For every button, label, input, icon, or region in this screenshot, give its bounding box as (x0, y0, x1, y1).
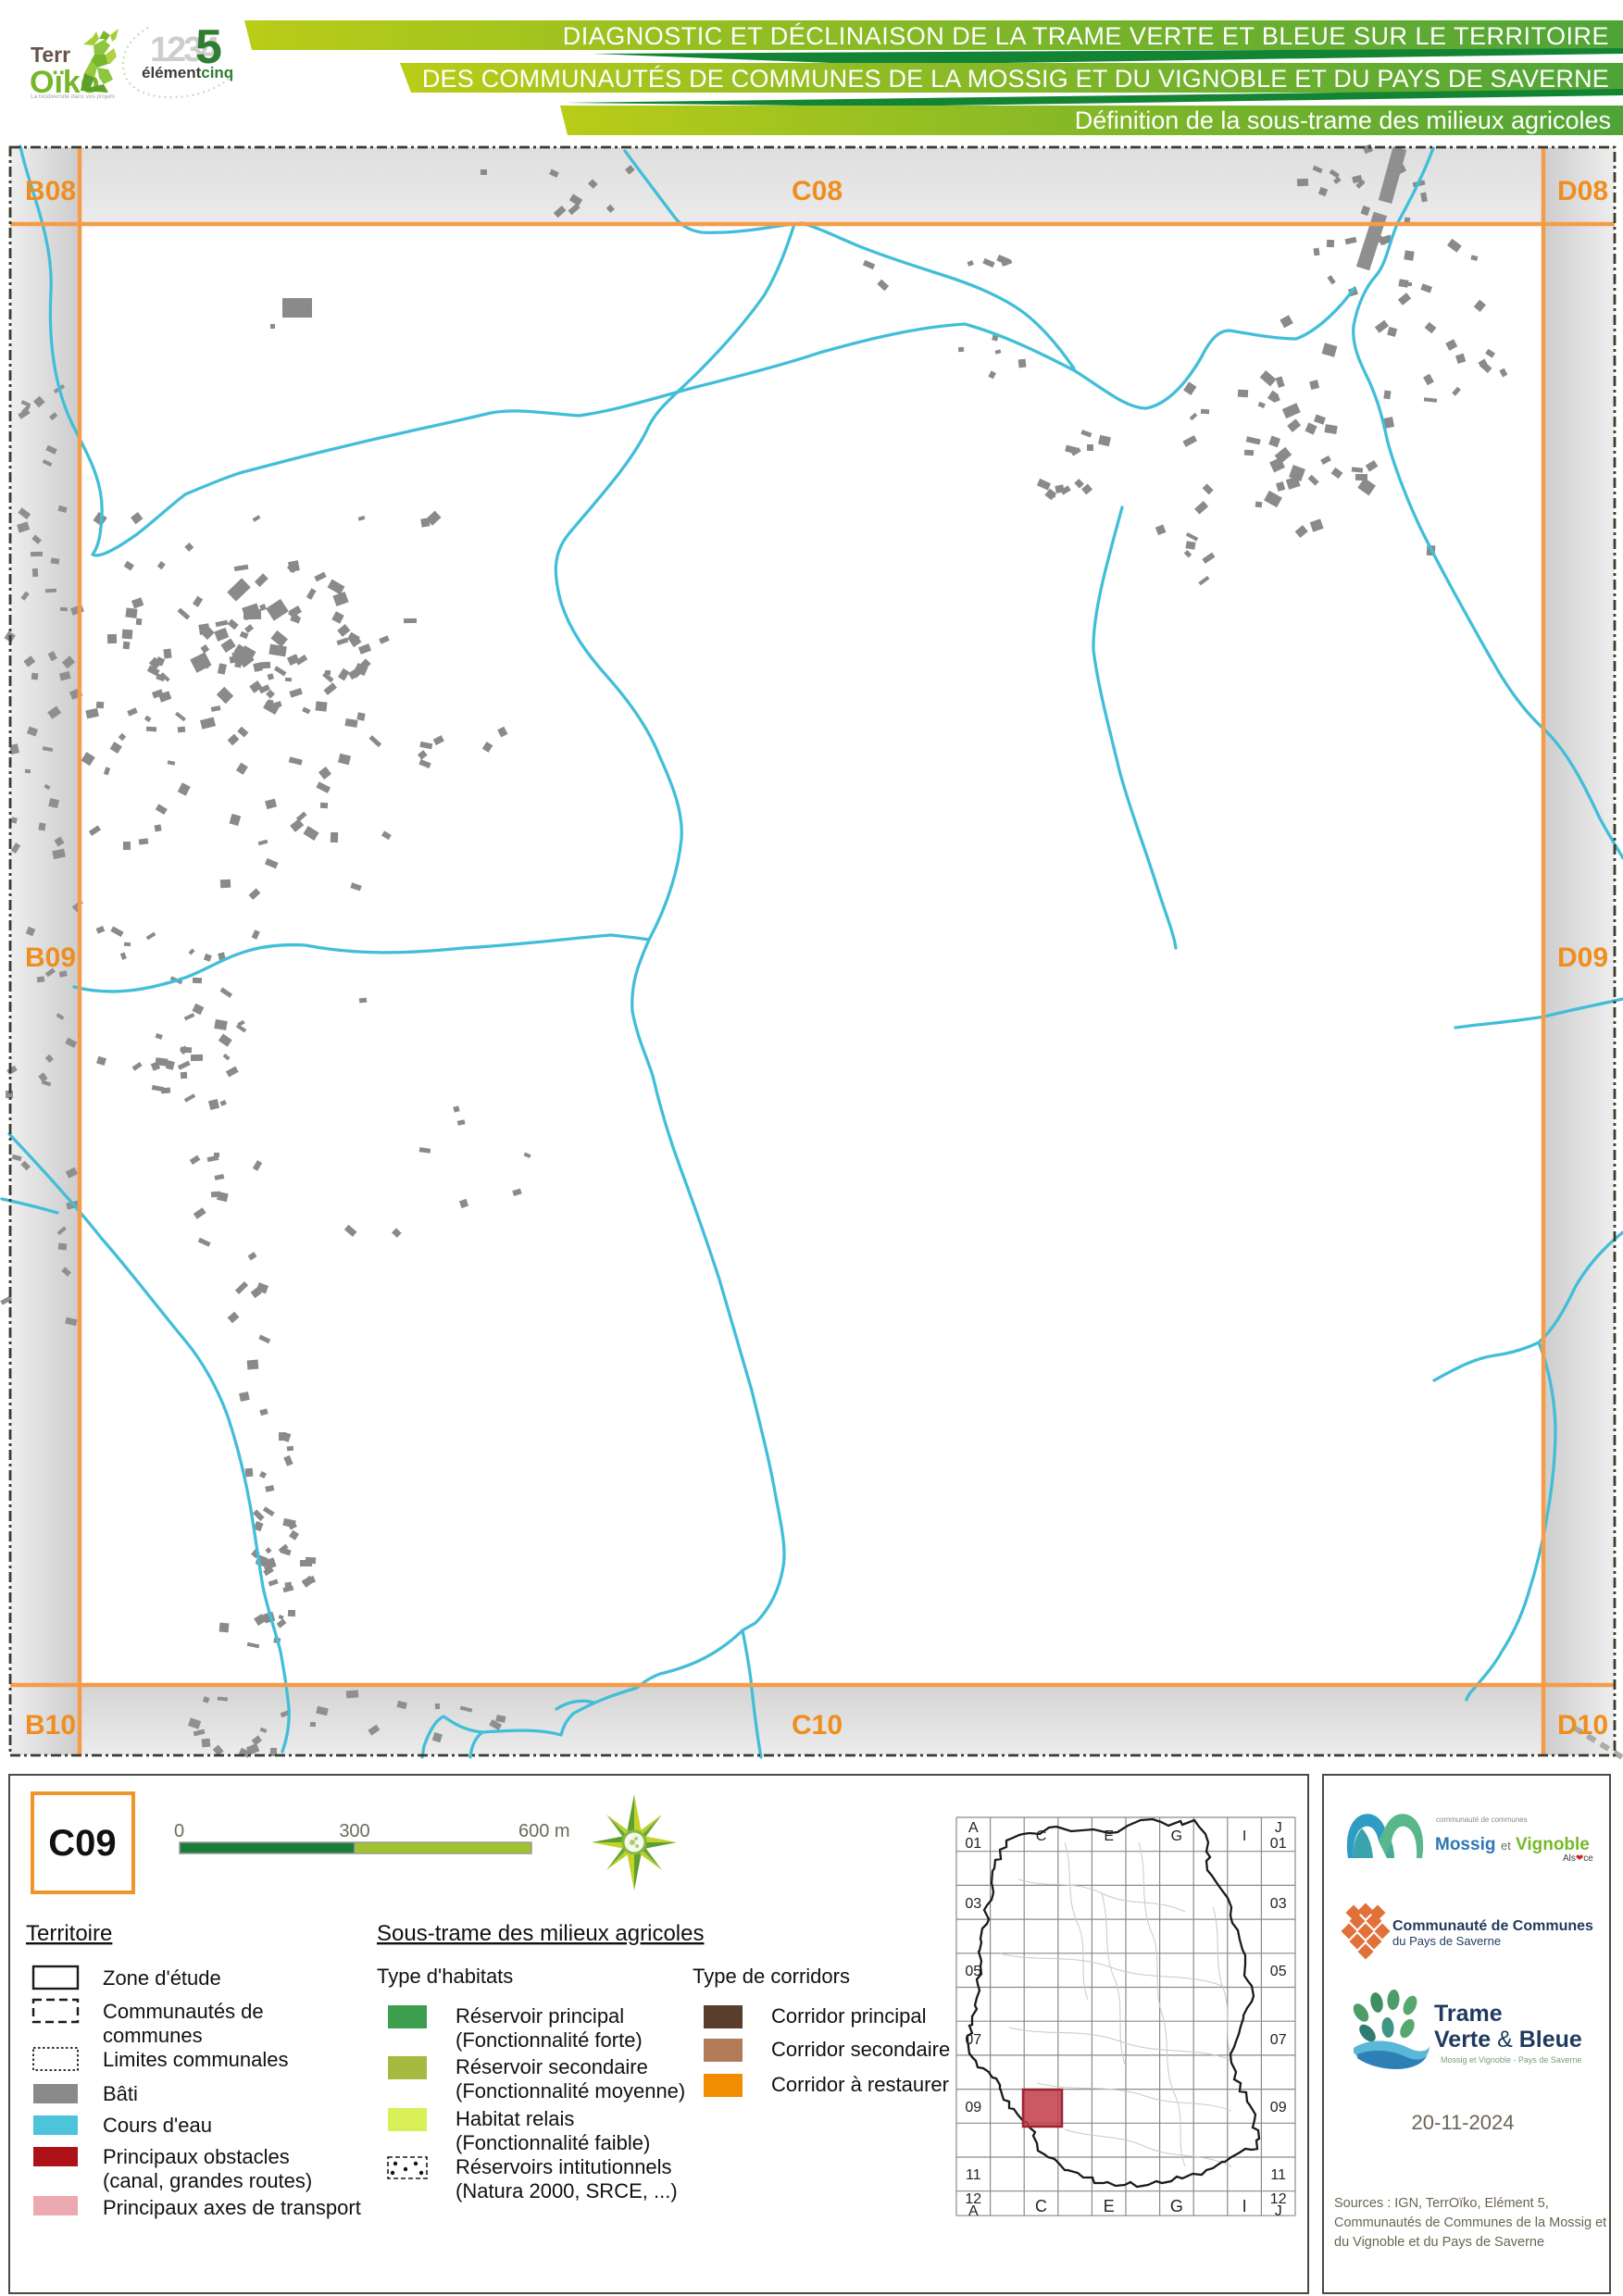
svg-text:Mossig: Mossig (1435, 1835, 1495, 1854)
svg-text:11: 11 (966, 2167, 981, 2183)
svg-text:élémentcinq: élémentcinq (142, 64, 233, 81)
svg-text:(Fonctionnalité forte): (Fonctionnalité forte) (456, 2028, 643, 2052)
svg-text:B09: B09 (25, 942, 76, 973)
svg-text:07: 07 (965, 2032, 981, 2048)
svg-text:DIAGNOSTIC ET DÉCLINAISON DE L: DIAGNOSTIC ET DÉCLINAISON DE LA TRAME VE… (563, 22, 1609, 50)
svg-text:Territoire: Territoire (26, 1921, 112, 1946)
svg-text:C10: C10 (792, 1710, 843, 1741)
svg-text:Trame: Trame (1434, 2001, 1503, 2027)
svg-text:(Natura 2000, SRCE, ...): (Natura 2000, SRCE, ...) (456, 2179, 678, 2202)
svg-text:communes: communes (103, 2024, 203, 2047)
svg-text:20-11-2024: 20-11-2024 (1412, 2111, 1515, 2134)
svg-text:0: 0 (174, 1821, 184, 1841)
svg-text:Mossig et Vignoble - Pays de S: Mossig et Vignoble - Pays de Saverne (1441, 2055, 1581, 2065)
svg-text:Sous-trame des milieux agricol: Sous-trame des milieux agricoles (377, 1921, 704, 1946)
svg-text:Vignoble: Vignoble (1516, 1835, 1590, 1854)
svg-text:Corridor principal: Corridor principal (771, 2004, 927, 2028)
svg-text:J: J (1275, 2203, 1282, 2219)
svg-text:Type de corridors: Type de corridors (693, 1965, 850, 1988)
svg-text:Sources : IGN, TerrOïko, Eléme: Sources : IGN, TerrOïko, Elément 5, (1334, 2196, 1549, 2211)
svg-text:Principaux axes de transport: Principaux axes de transport (103, 2196, 361, 2219)
svg-text:300: 300 (339, 1821, 369, 1841)
svg-text:03: 03 (1270, 1896, 1287, 1912)
svg-text:A: A (968, 2203, 979, 2219)
svg-text:09: 09 (965, 2100, 981, 2115)
svg-text:G: G (1171, 1828, 1182, 1844)
svg-text:01: 01 (965, 1836, 981, 1852)
svg-text:Habitat relais: Habitat relais (456, 2107, 574, 2130)
svg-text:et: et (1501, 1839, 1511, 1853)
svg-text:(canal, grandes routes): (canal, grandes routes) (103, 2169, 312, 2192)
svg-text:05: 05 (965, 1964, 981, 1979)
svg-text:Principaux obstacles: Principaux obstacles (103, 2145, 290, 2168)
svg-text:C08: C08 (792, 176, 843, 206)
svg-text:Verte & Bleue: Verte & Bleue (1434, 2027, 1582, 2053)
svg-text:du Vignoble et du Pays de Save: du Vignoble et du Pays de Saverne (1334, 2235, 1544, 2250)
svg-text:DES COMMUNAUTÉS DE COMMUNES DE: DES COMMUNAUTÉS DE COMMUNES DE LA MOSSIG… (422, 65, 1609, 93)
svg-text:La biodiversité dans vos proje: La biodiversité dans vos projets (31, 94, 116, 100)
svg-text:Communautés de Communes de la: Communautés de Communes de la Mossig et (1334, 2215, 1606, 2230)
svg-text:G: G (1170, 2197, 1183, 2215)
svg-text:Type d'habitats: Type d'habitats (377, 1965, 513, 1988)
svg-text:Cours d'eau: Cours d'eau (103, 2114, 212, 2137)
svg-text:Zone d'étude: Zone d'étude (103, 1966, 221, 1990)
svg-text:D08: D08 (1557, 176, 1608, 206)
svg-text:J: J (1275, 1820, 1282, 1836)
svg-text:Communauté de Communes: Communauté de Communes (1392, 1918, 1593, 1934)
svg-text:A: A (968, 1820, 979, 1836)
svg-text:C: C (1035, 2197, 1047, 2215)
svg-text:B10: B10 (25, 1710, 76, 1741)
svg-text:09: 09 (1270, 2100, 1287, 2115)
svg-text:C: C (1036, 1828, 1047, 1844)
svg-text:Définition de la sous-trame de: Définition de la sous-trame des milieux … (1075, 106, 1611, 134)
svg-text:Corridor à restaurer: Corridor à restaurer (771, 2073, 949, 2096)
svg-text:05: 05 (1270, 1964, 1287, 1979)
svg-text:11: 11 (1270, 2167, 1286, 2183)
svg-text:communauté de communes: communauté de communes (1436, 1816, 1528, 1824)
svg-text:Limites communales: Limites communales (103, 2048, 289, 2071)
svg-text:Terr: Terr (31, 43, 70, 67)
svg-text:Als❤ce: Als❤ce (1563, 1853, 1593, 1864)
svg-text:E: E (1104, 1828, 1114, 1844)
svg-text:B08: B08 (25, 176, 76, 206)
svg-text:01: 01 (1270, 1836, 1287, 1852)
svg-text:C09: C09 (48, 1823, 116, 1864)
svg-text:D10: D10 (1557, 1710, 1608, 1741)
svg-text:Corridor secondaire: Corridor secondaire (771, 2038, 950, 2061)
svg-text:E: E (1104, 2197, 1115, 2215)
svg-text:Réservoir principal: Réservoir principal (456, 2004, 624, 2028)
svg-text:D09: D09 (1557, 942, 1608, 973)
svg-text:Réservoirs intitutionnels: Réservoirs intitutionnels (456, 2155, 672, 2178)
svg-text:du Pays de Saverne: du Pays de Saverne (1392, 1934, 1501, 1948)
svg-text:(Fonctionnalité moyenne): (Fonctionnalité moyenne) (456, 2079, 685, 2103)
svg-text:Communautés de: Communautés de (103, 2000, 264, 2023)
svg-text:03: 03 (965, 1896, 981, 1912)
svg-text:600 m: 600 m (518, 1821, 570, 1841)
svg-text:I: I (1242, 1828, 1246, 1844)
svg-text:(Fonctionnalité faible): (Fonctionnalité faible) (456, 2131, 650, 2154)
svg-text:Réservoir secondaire: Réservoir secondaire (456, 2055, 648, 2078)
svg-text:I: I (1242, 2197, 1247, 2215)
svg-text:07: 07 (1270, 2032, 1287, 2048)
svg-text:Bâti: Bâti (103, 2082, 138, 2105)
